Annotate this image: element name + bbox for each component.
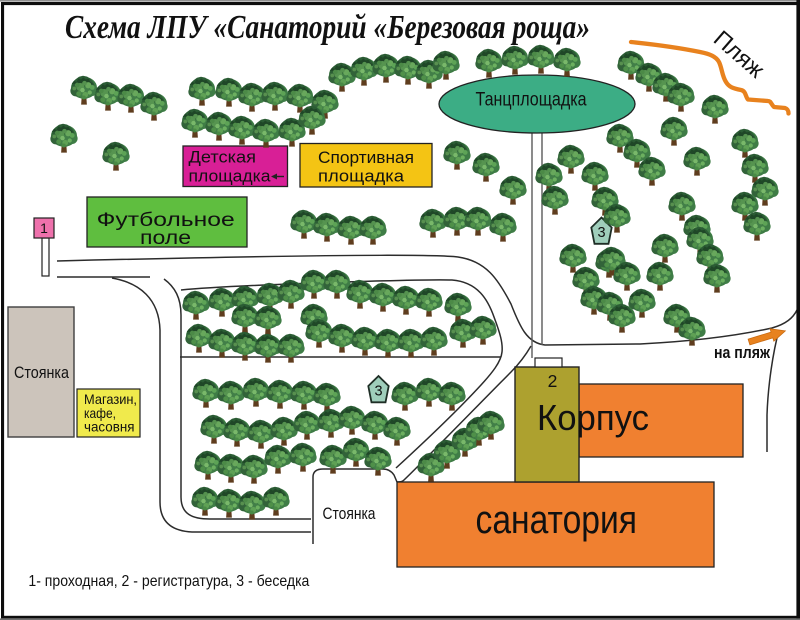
svg-text:Спортивная: Спортивная: [318, 149, 414, 167]
svg-text:поле: поле: [140, 228, 191, 249]
svg-text:Стоянка: Стоянка: [14, 363, 69, 382]
svg-text:Стоянка: Стоянка: [323, 504, 376, 523]
svg-text:Корпус: Корпус: [537, 397, 649, 438]
svg-text:1: 1: [40, 220, 48, 236]
svg-text:2: 2: [548, 371, 558, 391]
svg-text:3: 3: [374, 384, 382, 400]
svg-text:3: 3: [597, 225, 605, 241]
svg-text:на пляж: на пляж: [714, 344, 770, 362]
svg-text:площадка: площадка: [318, 168, 405, 186]
svg-text:площадка: площадка: [189, 168, 272, 186]
svg-text:часовня: часовня: [84, 419, 135, 435]
svg-text:Детская: Детская: [189, 149, 257, 167]
svg-text:Танцплощадка: Танцплощадка: [476, 90, 587, 111]
svg-text:санатория: санатория: [476, 498, 638, 542]
svg-text:Схема ЛПУ «Санаторий «Березова: Схема ЛПУ «Санаторий «Березовая роща»: [65, 9, 590, 46]
svg-text:1- проходная, 2 - регистратура: 1- проходная, 2 - регистратура, 3 - бесе…: [28, 573, 309, 590]
